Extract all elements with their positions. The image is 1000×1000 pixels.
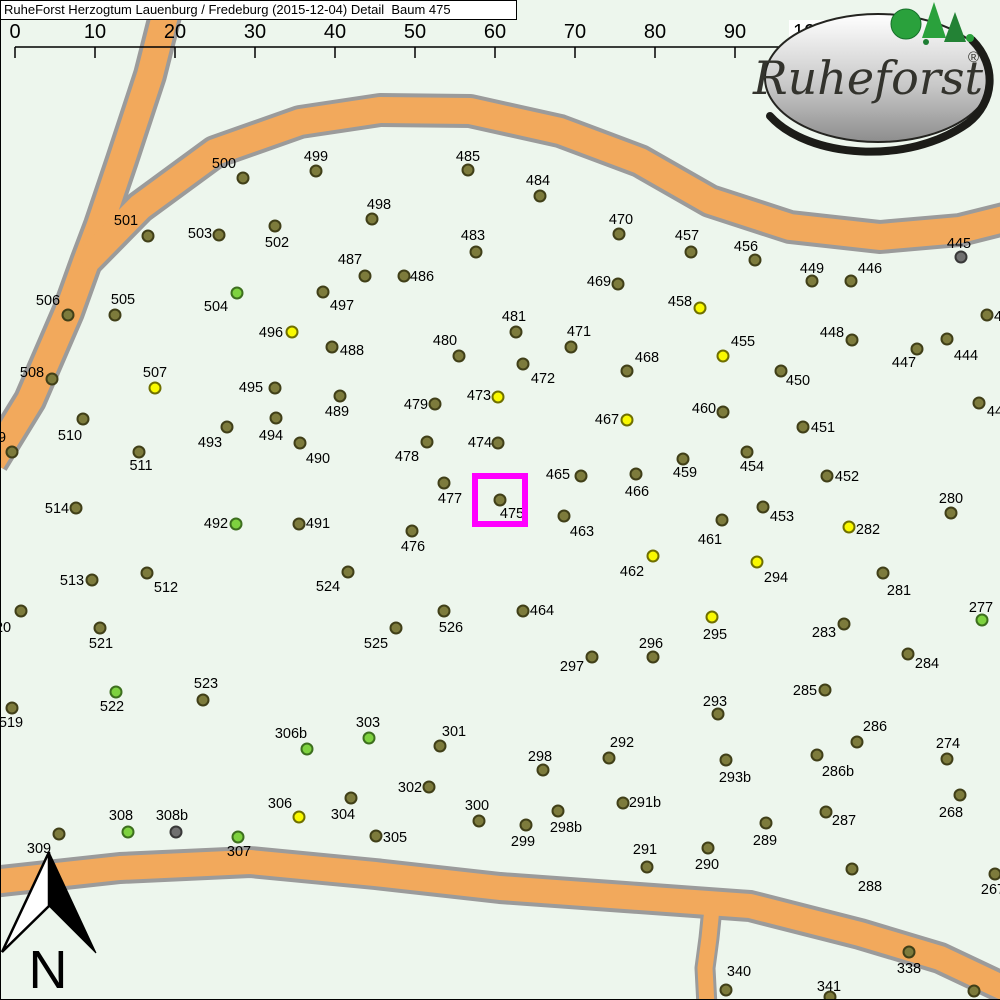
tree-dot-306b (302, 744, 313, 755)
tree-label-523: 523 (194, 676, 218, 692)
tree-dot-452 (822, 471, 833, 482)
tree-label-283: 283 (812, 625, 836, 641)
tree-label-302: 302 (398, 780, 422, 796)
tree-label-463: 463 (570, 524, 594, 540)
tree-dot-510 (78, 414, 89, 425)
tree-dot-295 (707, 612, 718, 623)
tree-label-291b: 291b (629, 795, 661, 811)
tree-label-454: 454 (740, 459, 764, 475)
tree-dot-450 (776, 366, 787, 377)
tree-dot-268 (955, 790, 966, 801)
tree-dot-308b (171, 827, 182, 838)
tree-label-340: 340 (727, 964, 751, 980)
tree-dot-292 (604, 753, 615, 764)
tree-label-489: 489 (325, 404, 349, 420)
tree-dot-474 (493, 438, 504, 449)
logo-tree-round (891, 9, 921, 39)
tree-label-461: 461 (698, 532, 722, 548)
tree-dot-475 (495, 495, 506, 506)
tree-label-492: 492 (204, 516, 228, 532)
tree-dot-460 (718, 407, 729, 418)
tree-label-502: 502 (265, 235, 289, 251)
tree-dot-267 (990, 869, 1000, 880)
tree-dot-520 (16, 606, 27, 617)
scale-tick-label-30: 30 (244, 21, 266, 43)
tree-dot-508 (47, 374, 58, 385)
tree-dot-473 (493, 392, 504, 403)
tree-dot-489 (335, 391, 346, 402)
tree-label-282: 282 (856, 522, 880, 538)
tree-label-303: 303 (356, 715, 380, 731)
scale-tick-label-10: 10 (84, 21, 106, 43)
tree-label-448: 448 (820, 325, 844, 341)
tree-label-485: 485 (456, 149, 480, 165)
tree-dot-511 (134, 447, 145, 458)
tree-label-274: 274 (936, 736, 960, 752)
tree-dot-274 (942, 754, 953, 765)
tree-label-285: 285 (793, 683, 817, 699)
tree-dot-283 (839, 619, 850, 630)
tree-dot-282 (844, 522, 855, 533)
tree-label-467: 467 (595, 412, 619, 428)
tree-dot-306 (294, 812, 305, 823)
tree-label-521: 521 (89, 636, 113, 652)
tree-label-497: 497 (330, 298, 354, 314)
tree-label-286b: 286b (822, 764, 854, 780)
tree-dot-519 (7, 703, 18, 714)
tree-label-306: 306 (268, 796, 292, 812)
tree-dot-494 (271, 413, 282, 424)
tree-dot-500 (238, 173, 249, 184)
map-canvas: 5005015035024994984854844834874864704574… (0, 0, 1000, 1000)
tree-label-481: 481 (502, 309, 526, 325)
tree-label-268: 268 (939, 805, 963, 821)
tree-label-469: 469 (587, 274, 611, 290)
tree-dot-503 (214, 230, 225, 241)
tree-dot (969, 986, 980, 997)
logo-registered-mark: ® (968, 49, 979, 66)
tree-label-456: 456 (734, 239, 758, 255)
tree-label-304: 304 (331, 807, 355, 823)
scale-bar: 0102030405060708090100m (9, 20, 847, 58)
tree-label-277: 277 (969, 600, 993, 616)
tree-dot-453 (758, 502, 769, 513)
tree-dot-288 (847, 864, 858, 875)
tree-label-447: 447 (892, 355, 916, 371)
tree-dot-286 (852, 737, 863, 748)
tree-dot-470 (614, 229, 625, 240)
tree-label-459: 459 (673, 465, 697, 481)
tree-dot-303 (364, 733, 375, 744)
tree-dot-487 (360, 271, 371, 282)
tree-dot-304 (346, 793, 357, 804)
tree-dot-471 (566, 342, 577, 353)
tree-label-306b: 306b (275, 726, 307, 742)
tree-label-499: 499 (304, 149, 328, 165)
tree-label-520: 520 (0, 620, 11, 636)
tree-label-503: 503 (188, 226, 212, 242)
tree-label-478: 478 (395, 449, 419, 465)
tree-dot-299 (521, 820, 532, 831)
tree-dot-484 (535, 191, 546, 202)
tree-dot-509 (7, 447, 18, 458)
tree-dot-447 (912, 344, 923, 355)
tree-label-301: 301 (442, 724, 466, 740)
tree-label-473: 473 (467, 388, 491, 404)
tree-dot-492 (231, 519, 242, 530)
tree-label-475: 475 (500, 506, 524, 522)
tree-label-4: 4 (994, 309, 1000, 325)
tree-dot-467 (622, 415, 633, 426)
tree-dot-506 (63, 310, 74, 321)
tree-dot-526 (439, 606, 450, 617)
tree-label-494: 494 (259, 428, 283, 444)
compass-label: N (29, 940, 68, 1000)
tree-dot-280 (946, 508, 957, 519)
tree-dot-476 (407, 526, 418, 537)
tree-dot-490 (295, 438, 306, 449)
tree-dot-307 (233, 832, 244, 843)
tree-dot-480 (454, 351, 465, 362)
tree-label-525: 525 (364, 636, 388, 652)
tree-label-465: 465 (546, 467, 570, 483)
tree-label-507: 507 (143, 365, 167, 381)
tree-label-477: 477 (438, 491, 462, 507)
scale-tick-label-0: 0 (9, 21, 20, 43)
tree-label-298b: 298b (550, 820, 582, 836)
tree-label-487: 487 (338, 252, 362, 268)
tree-label-281: 281 (887, 583, 911, 599)
tree-label-462: 462 (620, 564, 644, 580)
tree-label-506: 506 (36, 293, 60, 309)
tree-label-287: 287 (832, 813, 856, 829)
tree-label-512: 512 (154, 580, 178, 596)
tree-label-451: 451 (811, 420, 835, 436)
tree-dot-469 (613, 279, 624, 290)
tree-label-307: 307 (227, 844, 251, 860)
tree-label-286: 286 (863, 719, 887, 735)
tree-label-284: 284 (915, 656, 939, 672)
tree-label-493: 493 (198, 435, 222, 451)
map-title: RuheForst Herzogtum Lauenburg / Fredebur… (0, 0, 517, 20)
scale-tick-label-60: 60 (484, 21, 506, 43)
scale-tick-label-50: 50 (404, 21, 426, 43)
tree-label-293b: 293b (719, 770, 751, 786)
map-svg: 5005015035024994984854844834874864704574… (0, 0, 1000, 1000)
tree-dot-338 (904, 947, 915, 958)
tree-label-501: 501 (114, 213, 138, 229)
tree-label-308: 308 (109, 808, 133, 824)
tree-label-292: 292 (610, 735, 634, 751)
logo-wordmark: Ruheforst (752, 51, 983, 105)
tree-dot-459 (678, 454, 689, 465)
tree-label-289: 289 (753, 833, 777, 849)
tree-dot-486 (399, 271, 410, 282)
tree-dot-309 (54, 829, 65, 840)
tree-dot-458 (695, 303, 706, 314)
tree-label-458: 458 (668, 294, 692, 310)
tree-dot-493 (222, 422, 233, 433)
tree-label-514: 514 (45, 501, 69, 517)
tree-dot-287 (821, 807, 832, 818)
tree-dot-513 (87, 575, 98, 586)
tree-dot-291 (642, 862, 653, 873)
tree-label-510: 510 (58, 428, 82, 444)
tree-label-444: 444 (954, 348, 978, 364)
tree-label-466: 466 (625, 484, 649, 500)
tree-label-280: 280 (939, 491, 963, 507)
tree-dot-300 (474, 816, 485, 827)
tree-label-476: 476 (401, 539, 425, 555)
tree-label-298: 298 (528, 749, 552, 765)
tree-dot-524 (343, 567, 354, 578)
tree-label-308b: 308b (156, 808, 188, 824)
tree-label-450: 450 (786, 373, 810, 389)
tree-label-505: 505 (111, 292, 135, 308)
tree-dot-463 (559, 511, 570, 522)
tree-dot-457 (686, 247, 697, 258)
tree-dot-512 (142, 568, 153, 579)
tree-label-504: 504 (204, 299, 228, 315)
tree-dot-448 (847, 335, 858, 346)
tree-dot-479 (430, 399, 441, 410)
tree-dot-488 (327, 342, 338, 353)
tree-dot-297 (587, 652, 598, 663)
scale-tick-label-40: 40 (324, 21, 346, 43)
tree-dot-521 (95, 623, 106, 634)
tree-dot-302 (424, 782, 435, 793)
tree-label-267: 267 (981, 882, 1000, 898)
tree-label-449: 449 (800, 261, 824, 277)
tree-dot-293b (721, 755, 732, 766)
tree-label-472: 472 (531, 371, 555, 387)
tree-label-471: 471 (567, 324, 591, 340)
tree-label-294: 294 (764, 570, 788, 586)
tree-label-526: 526 (439, 620, 463, 636)
tree-label-498: 498 (367, 197, 391, 213)
tree-dot-466 (631, 469, 642, 480)
tree-dot-286b (812, 750, 823, 761)
tree-dot-472 (518, 359, 529, 370)
tree-dot-498 (367, 214, 378, 225)
tree-label-457: 457 (675, 228, 699, 244)
tree-dot-281 (878, 568, 889, 579)
tree-label-445: 445 (947, 236, 971, 252)
ruheforst-logo: Ruheforst ® (752, 2, 991, 152)
tree-dot-4 (982, 310, 993, 321)
tree-dot-491 (294, 519, 305, 530)
tree-label-496: 496 (259, 325, 283, 341)
tree-dot-499 (311, 166, 322, 177)
tree-dot-284 (903, 649, 914, 660)
tree-label-483: 483 (461, 228, 485, 244)
tree-label-305: 305 (383, 830, 407, 846)
tree-dot-478 (422, 437, 433, 448)
tree-dot-44 (974, 398, 985, 409)
tree-label-519: 519 (0, 715, 23, 731)
tree-dot-285 (820, 685, 831, 696)
tree-dot-301 (435, 741, 446, 752)
tree-dot-298b (553, 806, 564, 817)
tree-dot-525 (391, 623, 402, 634)
tree-dot-507 (150, 383, 161, 394)
tree-dot-522 (111, 687, 122, 698)
tree-label-288: 288 (858, 879, 882, 895)
tree-label-291: 291 (633, 842, 657, 858)
tree-label-513: 513 (60, 573, 84, 589)
tree-dot-340 (721, 985, 732, 996)
tree-label-300: 300 (465, 798, 489, 814)
tree-label-479: 479 (404, 397, 428, 413)
tree-dot-505 (110, 310, 121, 321)
tree-label-296: 296 (639, 636, 663, 652)
tree-label-341: 341 (817, 979, 841, 995)
tree-dot-454 (742, 447, 753, 458)
tree-dot-502 (270, 221, 281, 232)
tree-label-508: 508 (20, 365, 44, 381)
tree-dot-291b (618, 798, 629, 809)
tree-label-491: 491 (306, 516, 330, 532)
tree-label-44: 44 (987, 404, 1000, 420)
tree-label-455: 455 (731, 334, 755, 350)
tree-dot-461 (717, 515, 728, 526)
logo-tree-dot-1 (966, 34, 974, 42)
tree-label-460: 460 (692, 401, 716, 417)
tree-label-452: 452 (835, 469, 859, 485)
tree-dot-294 (752, 557, 763, 568)
tree-dot-465 (576, 471, 587, 482)
scale-tick-label-20: 20 (164, 21, 186, 43)
tree-dot-481 (511, 327, 522, 338)
tree-label-295: 295 (703, 627, 727, 643)
tree-label-297: 297 (560, 659, 584, 675)
tree-label-480: 480 (433, 333, 457, 349)
tree-dot-477 (439, 478, 450, 489)
tree-dot-523 (198, 695, 209, 706)
tree-dot-496 (287, 327, 298, 338)
tree-label-524: 524 (316, 579, 340, 595)
tree-label-474: 474 (468, 435, 492, 451)
tree-dot-451 (798, 422, 809, 433)
tree-dot-290 (703, 843, 714, 854)
scale-tick-label-70: 70 (564, 21, 586, 43)
tree-label-299: 299 (511, 834, 535, 850)
scale-tick-label-80: 80 (644, 21, 666, 43)
tree-dot-289 (761, 818, 772, 829)
tree-dot-445 (956, 252, 967, 263)
scale-tick-label-90: 90 (724, 21, 746, 43)
tree-label-522: 522 (100, 699, 124, 715)
tree-label-464: 464 (530, 603, 554, 619)
tree-label-484: 484 (526, 173, 550, 189)
tree-label-470: 470 (609, 212, 633, 228)
tree-label-293: 293 (703, 694, 727, 710)
tree-dot-514 (71, 503, 82, 514)
tree-dot-497 (318, 287, 329, 298)
tree-label-486: 486 (410, 269, 434, 285)
tree-dot-305 (371, 831, 382, 842)
tree-dot-462 (648, 551, 659, 562)
tree-dot-504 (232, 288, 243, 299)
tree-label-511: 511 (129, 458, 152, 474)
tree-label-338: 338 (897, 961, 921, 977)
tree-label-500: 500 (212, 156, 236, 172)
tree-dot-468 (622, 366, 633, 377)
tree-label-468: 468 (635, 350, 659, 366)
tree-label-290: 290 (695, 857, 719, 873)
tree-dot-296 (648, 652, 659, 663)
tree-dot-298 (538, 765, 549, 776)
tree-dot-483 (471, 247, 482, 258)
tree-dot-446 (846, 276, 857, 287)
tree-dot-308 (123, 827, 134, 838)
tree-dot-485 (463, 165, 474, 176)
tree-dot-464 (518, 606, 529, 617)
tree-label-488: 488 (340, 343, 364, 359)
tree-label-446: 446 (858, 261, 882, 277)
tree-label-453: 453 (770, 509, 794, 525)
tree-dot-456 (750, 255, 761, 266)
tree-dot-495 (270, 383, 281, 394)
tree-label-495: 495 (239, 380, 263, 396)
tree-dot-444 (942, 334, 953, 345)
tree-dot-455 (718, 351, 729, 362)
logo-tree-dot-2 (923, 39, 929, 45)
tree-label-490: 490 (306, 451, 330, 467)
tree-dot-501 (143, 231, 154, 242)
